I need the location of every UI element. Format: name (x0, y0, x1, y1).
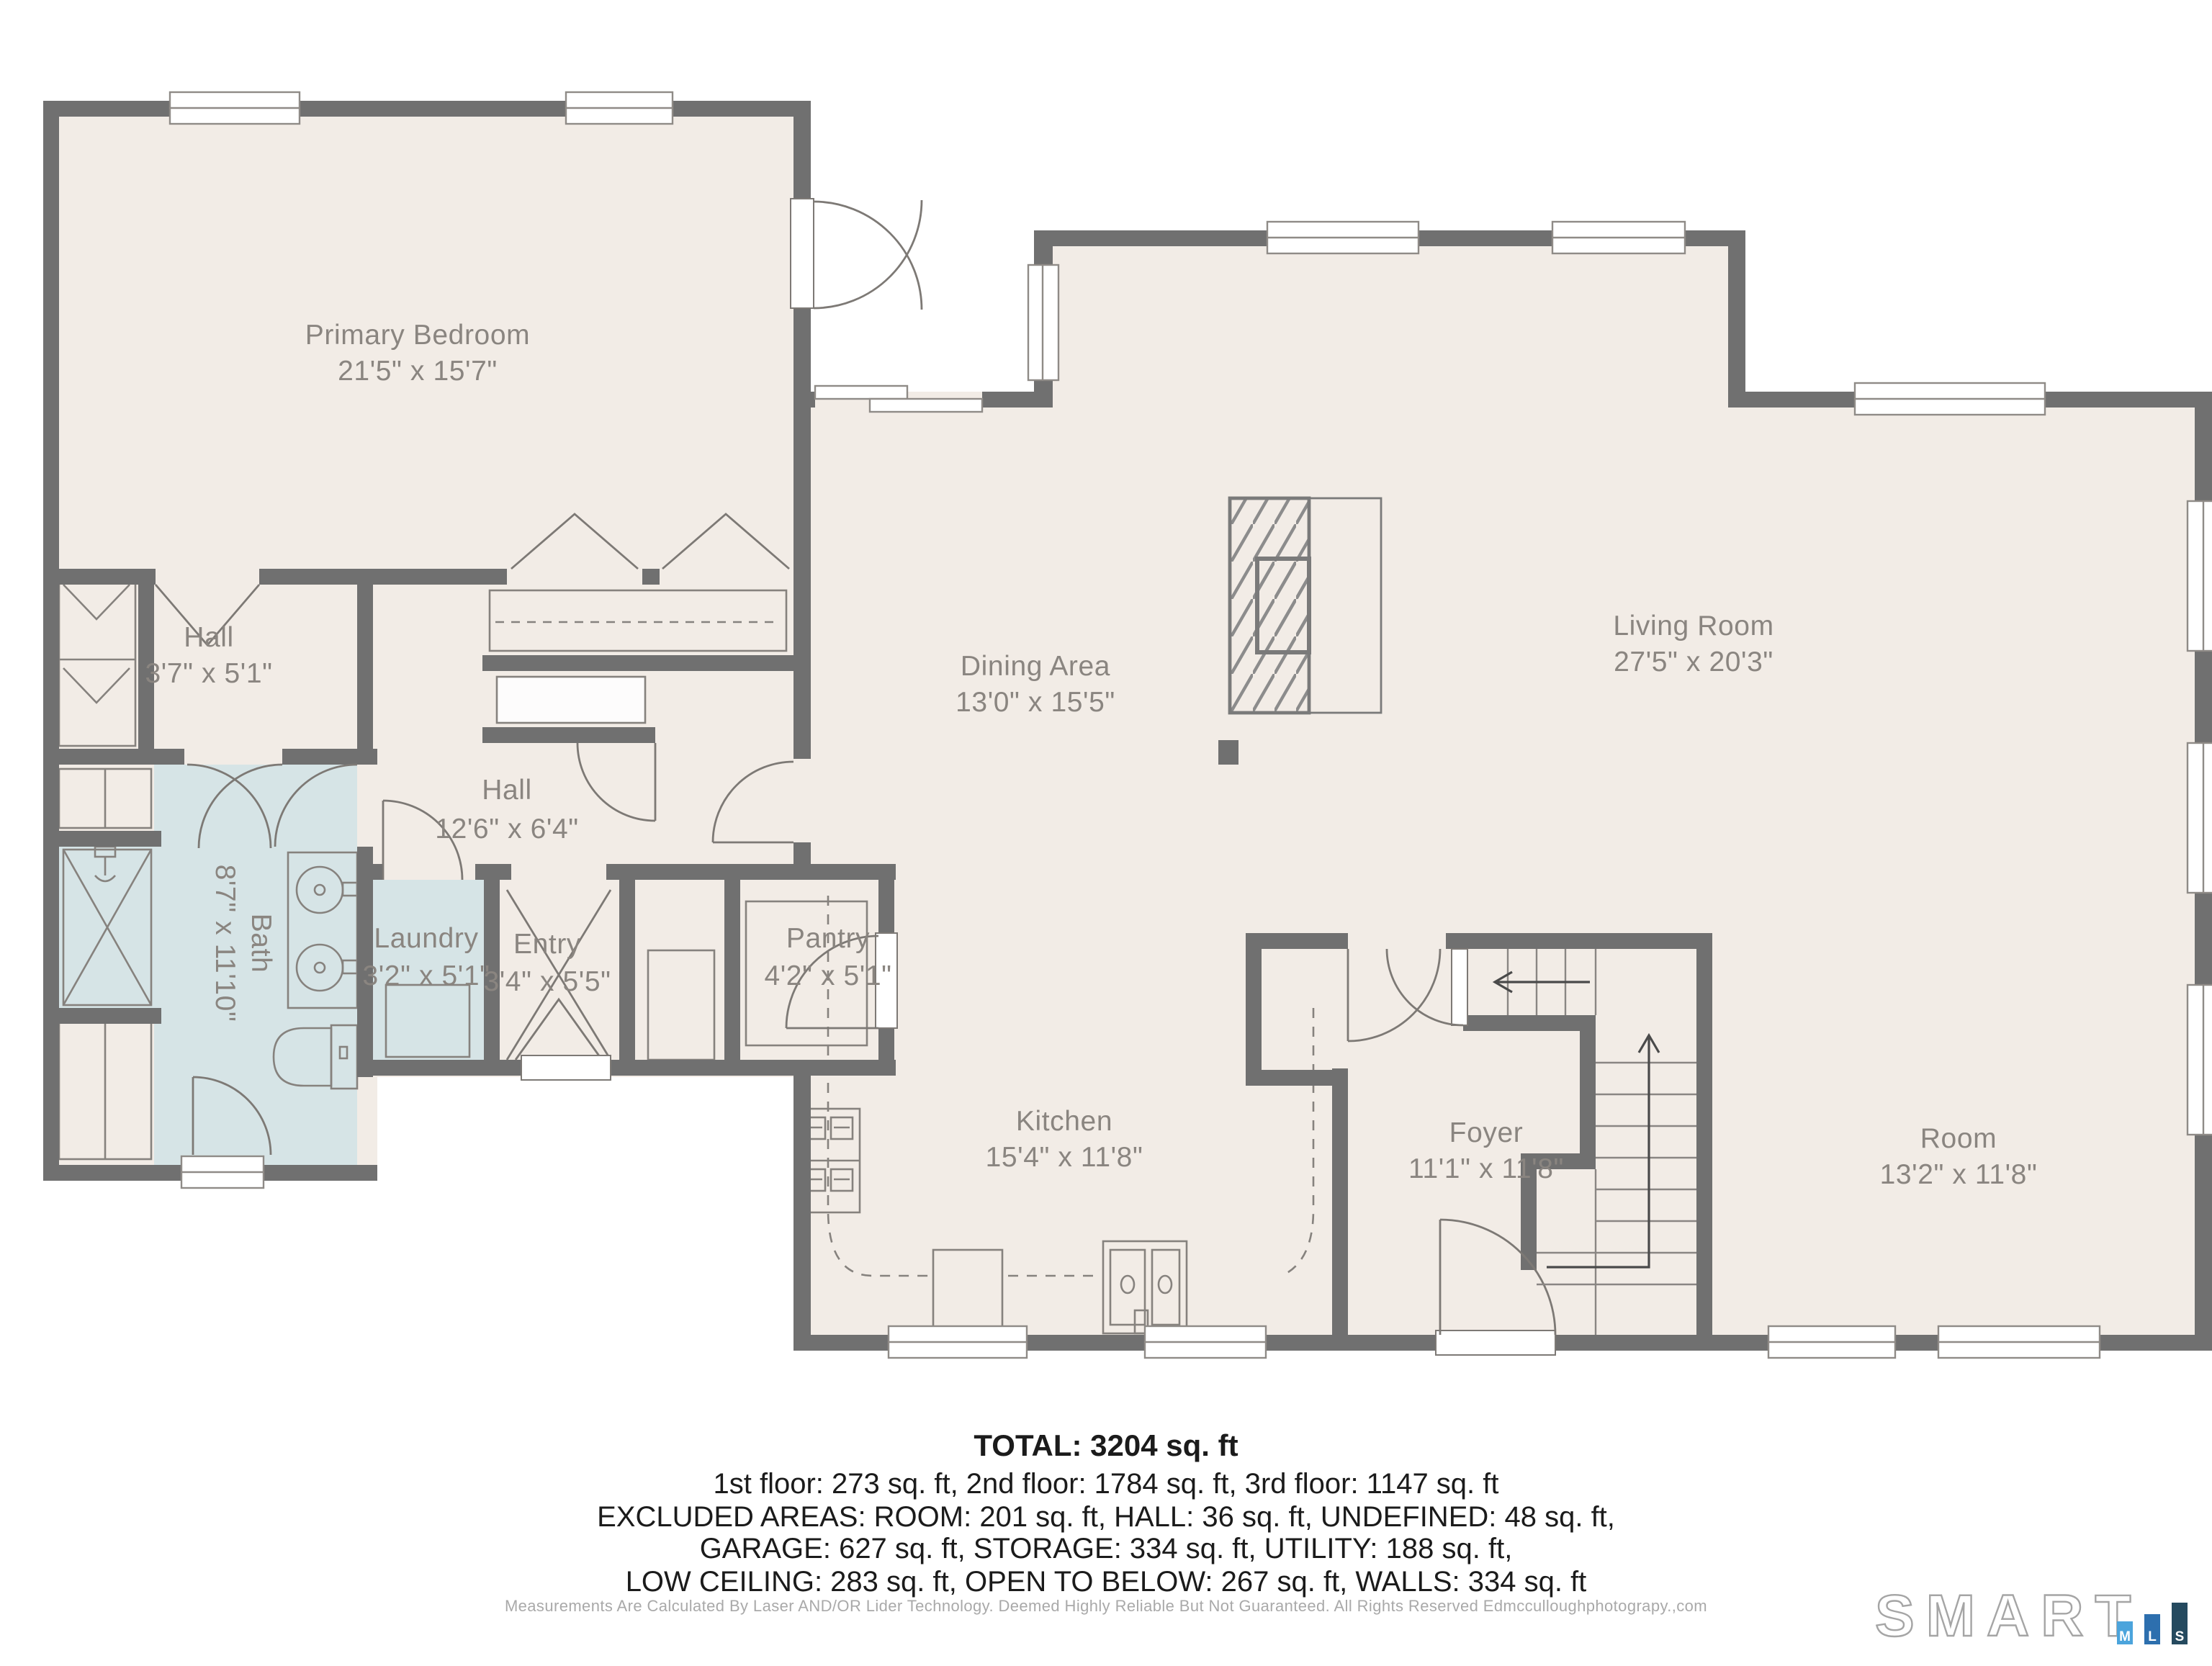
window (1028, 265, 1058, 380)
svg-text:Pantry: Pantry (786, 923, 870, 954)
window (1855, 383, 2045, 415)
floorplan-drawing: Primary Bedroom 21'5" x 15'7" Hall 3'7" … (0, 0, 2212, 1659)
svg-text:Dining Area: Dining Area (961, 651, 1110, 682)
s-letter: S (2175, 1629, 2185, 1644)
svg-text:21'5" x 15'7": 21'5" x 15'7" (338, 356, 498, 387)
svg-text:27'5" x 20'3": 27'5" x 20'3" (1614, 647, 1773, 677)
svg-text:Hall: Hall (184, 622, 234, 653)
svg-text:Hall: Hall (482, 775, 532, 806)
svg-text:Entry: Entry (513, 929, 581, 960)
area-summary: TOTAL: 3204 sq. ft 1st floor: 273 sq. ft… (0, 1430, 2212, 1598)
floorplan-page: Primary Bedroom 21'5" x 15'7" Hall 3'7" … (0, 0, 2212, 1659)
window (181, 1156, 264, 1188)
total-area: TOTAL: 3204 sq. ft (0, 1430, 2212, 1464)
smart-wordmark: SMART (1875, 1583, 2143, 1649)
window (1768, 1326, 1895, 1358)
window (1938, 1326, 2100, 1358)
window (1267, 222, 1419, 253)
window (2188, 501, 2212, 651)
window (1145, 1326, 1266, 1358)
svg-text:Living Room: Living Room (1613, 611, 1773, 641)
svg-text:13'0" x 15'5": 13'0" x 15'5" (956, 687, 1115, 718)
bedroom-exterior-door (791, 199, 922, 310)
svg-text:3'4" x 5'5": 3'4" x 5'5" (483, 966, 611, 997)
svg-text:11'1" x 11'8": 11'1" x 11'8" (1408, 1153, 1564, 1184)
svg-text:Kitchen: Kitchen (1016, 1106, 1112, 1137)
svg-text:3'2" x 5'1": 3'2" x 5'1" (362, 960, 490, 991)
floors-line: 1st floor: 273 sq. ft, 2nd floor: 1784 s… (0, 1469, 2212, 1501)
svg-text:Laundry: Laundry (374, 923, 478, 954)
window (170, 92, 300, 124)
window (889, 1326, 1027, 1358)
excluded-line: EXCLUDED AREAS: ROOM: 201 sq. ft, HALL: … (0, 1501, 2212, 1534)
svg-text:13'2" x 11'8": 13'2" x 11'8" (1880, 1159, 2038, 1190)
window (1552, 222, 1685, 253)
garage-line: GARAGE: 627 sq. ft, STORAGE: 334 sq. ft,… (0, 1534, 2212, 1566)
svg-text:15'4" x 11'8": 15'4" x 11'8" (986, 1142, 1143, 1173)
window (2188, 985, 2212, 1135)
svg-text:4'2" x 5'1": 4'2" x 5'1" (764, 960, 891, 991)
smartmls-logo: SMART M L S (1872, 1578, 2206, 1650)
column-post (1218, 740, 1238, 765)
svg-text:Primary Bedroom: Primary Bedroom (305, 320, 530, 351)
svg-text:Room: Room (1920, 1123, 1997, 1154)
window (566, 92, 673, 124)
svg-text:Bath: Bath (246, 914, 276, 973)
svg-text:12'6" x 6'4": 12'6" x 6'4" (435, 814, 578, 845)
l-letter: L (2148, 1629, 2157, 1644)
m-letter: M (2119, 1629, 2131, 1644)
svg-text:Foyer: Foyer (1449, 1117, 1524, 1148)
window (2188, 743, 2212, 893)
svg-text:8'7" x 11'10": 8'7" x 11'10" (210, 865, 240, 1022)
svg-text:3'7" x 5'1": 3'7" x 5'1" (145, 658, 272, 689)
